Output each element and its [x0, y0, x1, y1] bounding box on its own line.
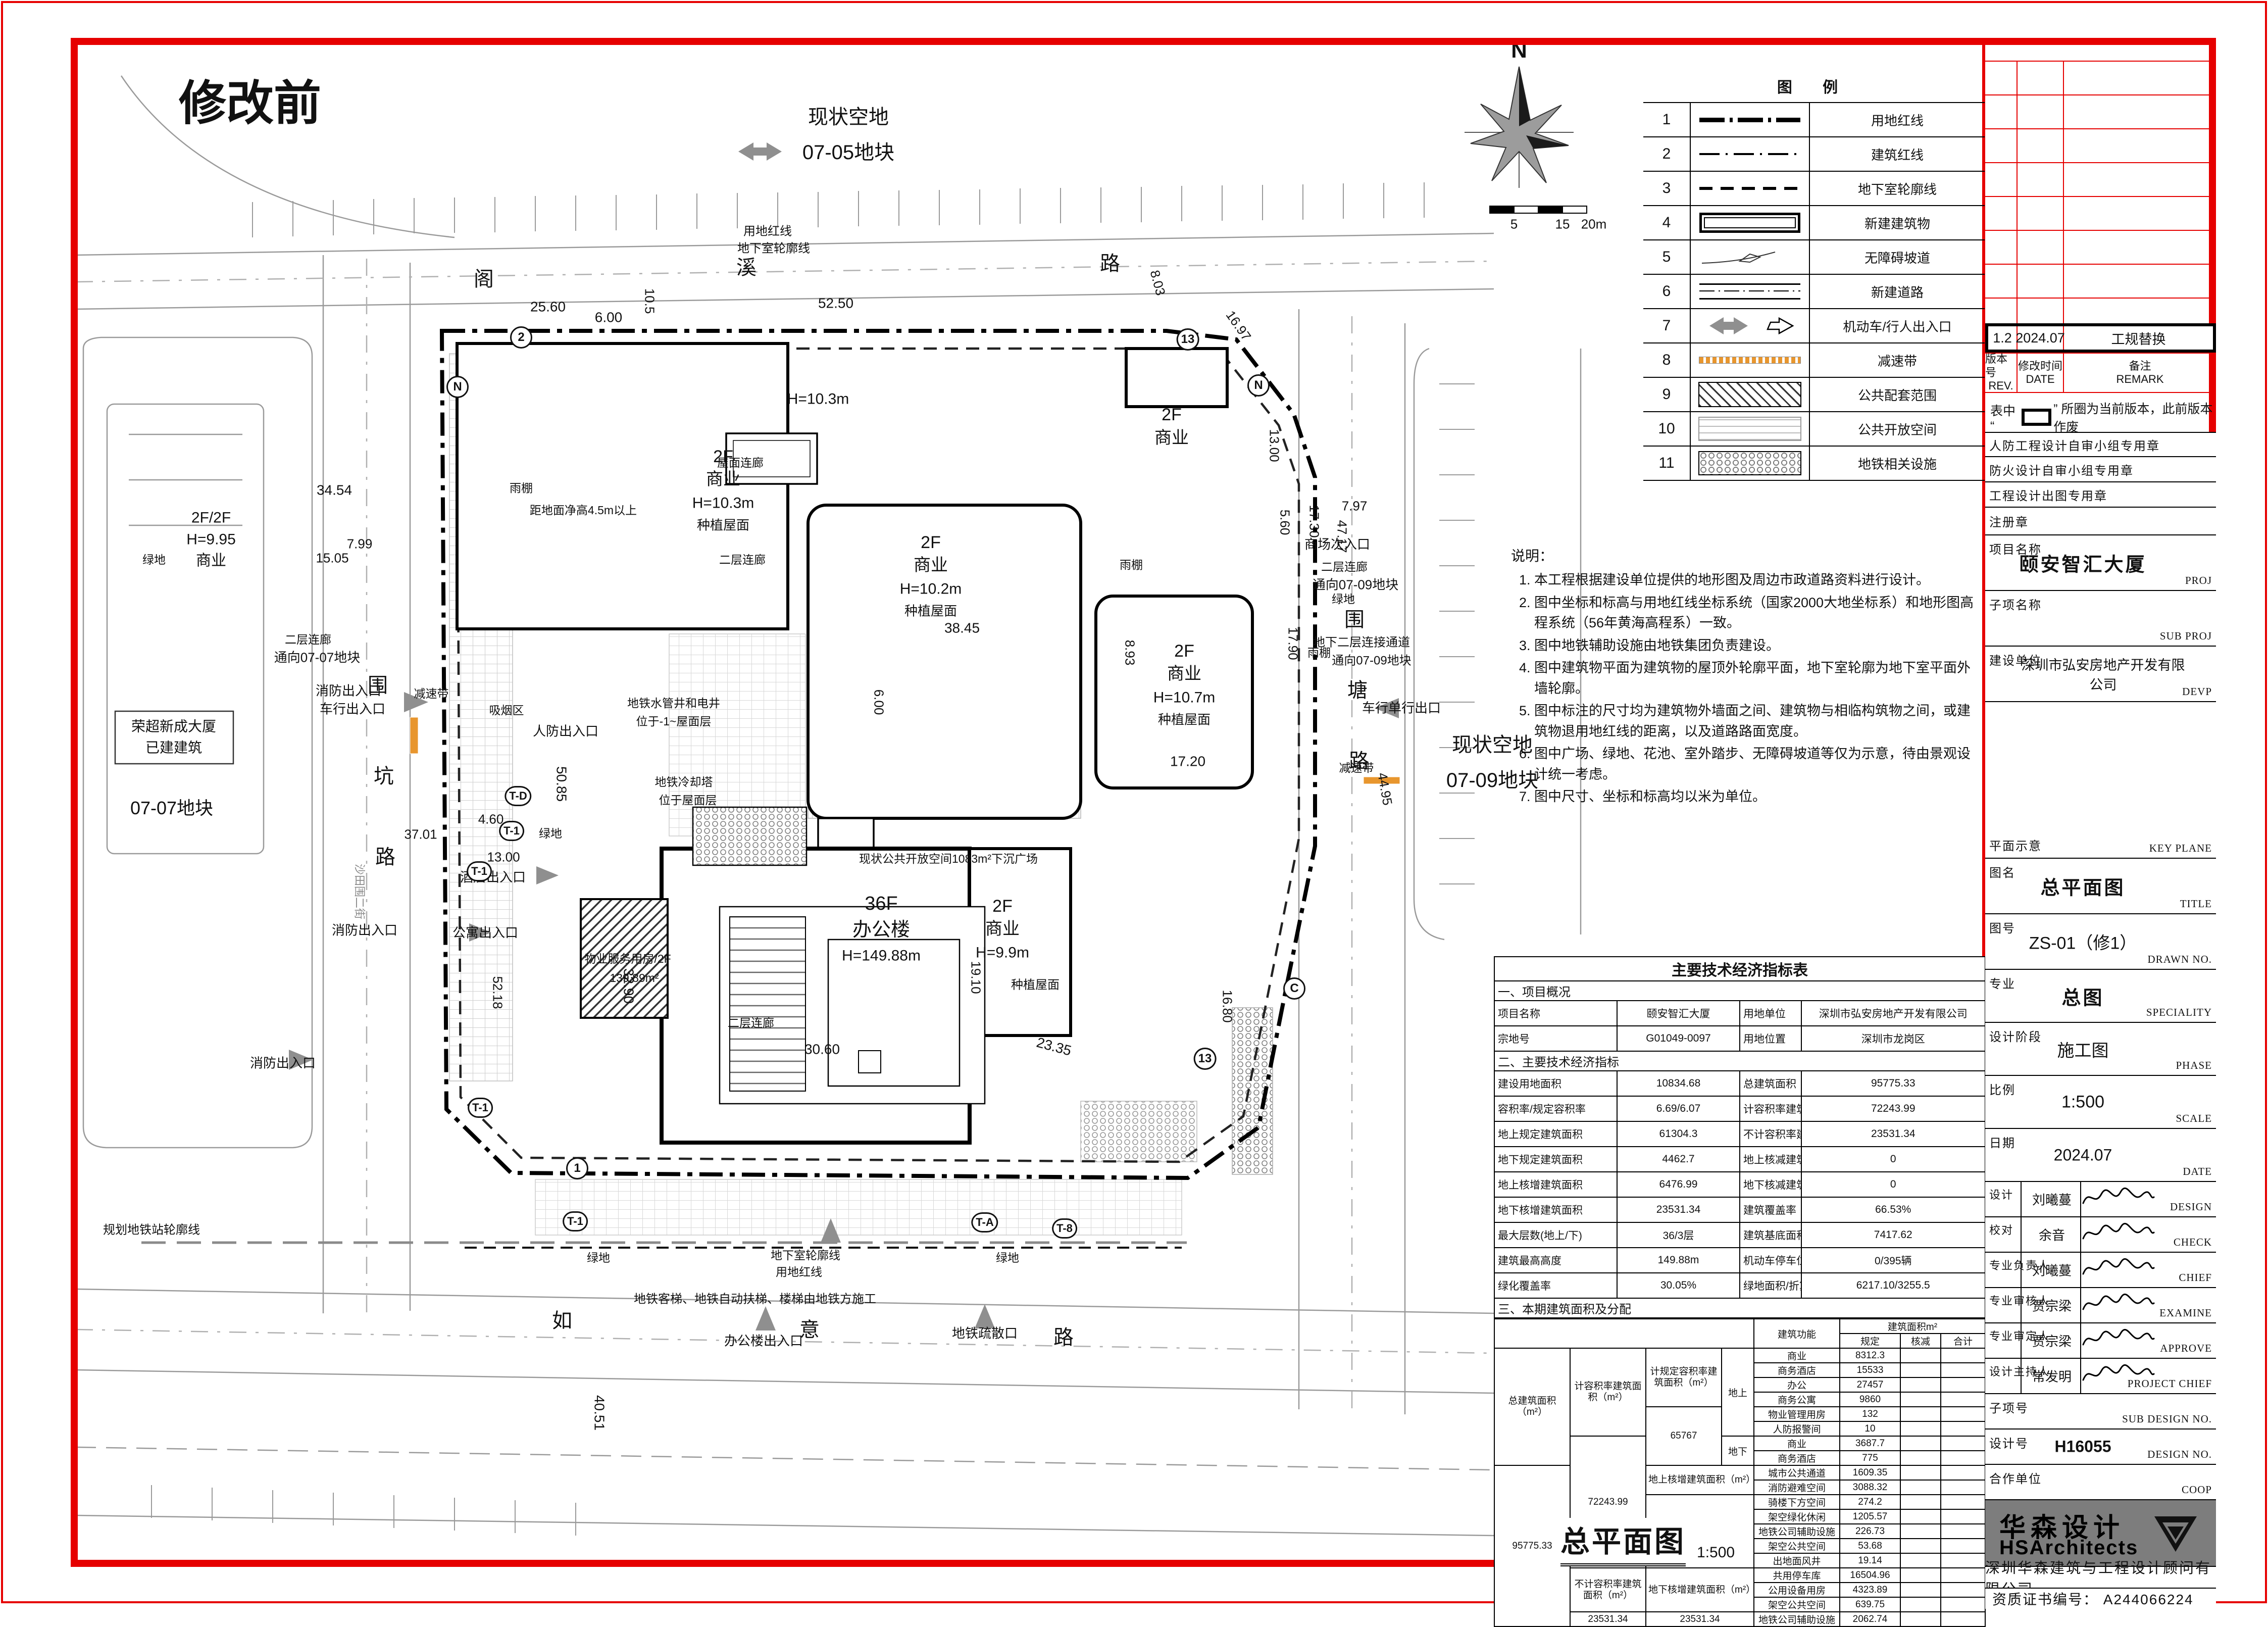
notes-title: 说明：	[1511, 546, 1978, 567]
econ-cell: 0	[1801, 1147, 1986, 1172]
legend-label: 机动车/行人出入口	[1810, 317, 1985, 335]
econ-cell: 6.69/6.07	[1617, 1096, 1740, 1121]
alloc-row: 总建筑面积（m²）计容积率建筑面积（m²）计规定容积率建筑面积（m²）地上商业8…	[1494, 1348, 1985, 1363]
econ-title: 主要技术经济指标表	[1494, 957, 1985, 981]
ramp-symbol-icon	[1691, 240, 1810, 274]
econ-cell: 建筑基底面积	[1740, 1222, 1801, 1248]
field-sub-design-no: 子项号 SUB DESIGN NO.	[1985, 1394, 2216, 1429]
alloc-subheader: 合计	[1941, 1334, 1985, 1348]
alloc-cell	[1900, 1451, 1941, 1465]
newroad-symbol-icon	[1691, 275, 1810, 308]
signature-scribble	[2080, 1185, 2156, 1214]
newbld-symbol-icon	[1691, 206, 1810, 239]
alloc-cell	[1941, 1583, 1985, 1597]
firm-cert: 资质证书编号： A244066224	[1985, 1589, 2216, 1609]
legend-number: 5	[1643, 240, 1691, 274]
econ-cell: 绿化覆盖率	[1494, 1273, 1617, 1298]
indicator-row: 最大层数(地上/下)36/3层建筑基底面积7417.62	[1494, 1222, 1985, 1248]
entry-symbol-icon	[1691, 309, 1810, 342]
alloc-cell	[1900, 1568, 1941, 1583]
note-item: 图中广场、绿地、花池、室外踏步、无障碍坡道等仅为示意，待由景观设计统一考虑。	[1534, 744, 1978, 784]
legend-row: 1用地红线	[1643, 103, 1985, 137]
econ-cell: 23531.34	[1617, 1197, 1740, 1222]
alloc-func-header: 建筑功能	[1754, 1319, 1840, 1348]
legend-label: 减速带	[1810, 351, 1985, 370]
legend-label: 地下室轮廓线	[1810, 179, 1985, 198]
alloc-cell	[1941, 1509, 1985, 1524]
legend-number: 7	[1643, 309, 1691, 342]
alloc-cell: 出地面风井	[1754, 1553, 1840, 1568]
note-item: 图中地铁辅助设施由地铁集团负责建设。	[1534, 635, 1978, 656]
alloc-cell	[1900, 1612, 1941, 1626]
econ-cell: 149.88m	[1617, 1248, 1740, 1273]
legend-number: 2	[1643, 137, 1691, 171]
indicator-row: 地上规定建筑面积61304.3不计容积率建筑面积23531.34	[1494, 1121, 1985, 1147]
econ-cell: 宗地号	[1494, 1026, 1617, 1051]
revision-empty-row	[1985, 196, 2216, 230]
econ-cell: 用地位置	[1740, 1026, 1801, 1051]
indicator-row: 容积率/规定容积率6.69/6.07计容积率建筑面积72243.99	[1494, 1096, 1985, 1121]
econ-cell: 66.53%	[1801, 1197, 1986, 1222]
alloc-cell: 地铁公司辅助设施	[1754, 1612, 1840, 1626]
alloc-cell	[1900, 1377, 1941, 1392]
legend-row: 7机动车/行人出入口	[1643, 309, 1985, 343]
alloc-cell	[1900, 1495, 1941, 1509]
legend-row: 2建筑红线	[1643, 137, 1985, 172]
alloc-cell: 公用设备用房	[1754, 1583, 1840, 1597]
alloc-cell: 城市公共通道	[1754, 1465, 1840, 1480]
alloc-cell: 1609.35	[1840, 1465, 1900, 1480]
note-item: 图中建筑物平面为建筑物的屋顶外轮廓平面，地下室轮廓为地下室平面外墙轮廓。	[1534, 658, 1978, 699]
alloc-cell: 132	[1840, 1407, 1900, 1421]
legend-label: 新建建筑物	[1810, 214, 1985, 232]
alloc-cell	[1941, 1348, 1985, 1363]
alloc-cell	[1900, 1597, 1941, 1612]
alloc-cell: 19.14	[1840, 1553, 1900, 1568]
alloc-cell	[1900, 1553, 1941, 1568]
alloc-cell	[1941, 1553, 1985, 1568]
alloc-cell: 4323.89	[1840, 1583, 1900, 1597]
signature-row: 专业负责人刘曦蔓CHIEF	[1985, 1253, 2216, 1288]
alloc-cell	[1900, 1436, 1941, 1451]
indicator-row: 绿化覆盖率30.05%绿地面积/折算绿地面积6217.10/3255.5	[1494, 1273, 1985, 1298]
econ-cell: 深圳市弘安房地产开发有限公司	[1801, 1001, 1986, 1026]
indicator-row: 地下规定建筑面积4462.7地上核减建筑面积0	[1494, 1147, 1985, 1172]
legend-label: 建筑红线	[1810, 145, 1985, 164]
alloc-span-cell: 地下核增建筑面积（m²）	[1646, 1568, 1754, 1612]
alloc-span-cell: 地下	[1722, 1436, 1754, 1465]
alloc-cell	[1941, 1524, 1985, 1539]
econ-cell: 10834.68	[1617, 1071, 1740, 1096]
revision-empty-row	[1985, 128, 2216, 162]
field-design-no: 设计号 H16055 DESIGN NO.	[1985, 1429, 2216, 1465]
alloc-cell: 架空绿化休闲	[1754, 1509, 1840, 1524]
field-scale: 比例 1:500 SCALE	[1985, 1076, 2216, 1129]
signature-row: 设计主持人常发明PROJECT CHIEF	[1985, 1359, 2216, 1394]
legend: 图 例 1用地红线2建筑红线3地下室轮廓线4新建建筑物5无障碍坡道6新建道路7机…	[1643, 75, 1985, 481]
revision-header-row: 版本号REV. 修改时间DATE 备注REMARK	[1985, 353, 2216, 393]
econ-cell: 地上规定建筑面积	[1494, 1121, 1617, 1147]
alloc-cell	[1900, 1363, 1941, 1377]
field-keyplan: 平面示意 KEY PLANE	[1985, 702, 2216, 859]
legend-row: 3地下室轮廓线	[1643, 172, 1985, 206]
signature-scribble	[2080, 1291, 2156, 1320]
econ-cell: 72243.99	[1801, 1096, 1986, 1121]
stamp-row: 工程设计出图专用章	[1985, 482, 2216, 508]
field-title: 图名 总平面图 TITLE	[1985, 859, 2216, 914]
legend-number: 6	[1643, 275, 1691, 308]
econ-cell: G01049-0097	[1617, 1026, 1740, 1051]
alloc-cell	[1941, 1421, 1985, 1436]
field-coop: 合作单位 COOP	[1985, 1465, 2216, 1500]
bldline-symbol-icon	[1691, 137, 1810, 171]
revision-remark: 工规替换	[2064, 326, 2213, 350]
econ-cell: 地下规定建筑面积	[1494, 1147, 1617, 1172]
notes-list: 本工程根据建设单位提供的地形图及周边市政道路资料进行设计。图中坐标和标高与用地红…	[1511, 570, 1978, 807]
note-item: 图中标注的尺寸均为建筑物外墙面之间、建筑物与相临构筑物之间，或建筑物退用地红线的…	[1534, 701, 1978, 742]
drawing-title: 总平面图 1:500	[1555, 1518, 1740, 1566]
legend-table: 1用地红线2建筑红线3地下室轮廓线4新建建筑物5无障碍坡道6新建道路7机动车/行…	[1643, 102, 1985, 481]
revision-empty-row	[1985, 162, 2216, 196]
field-drawn-no: 图号 ZS-01（修1） DRAWN NO.	[1985, 914, 2216, 970]
alloc-row: 95775.33地上核增建筑面积（m²）城市公共通道1609.35	[1494, 1465, 1985, 1480]
alloc-cell	[1900, 1539, 1941, 1553]
legend-row: 5无障碍坡道	[1643, 240, 1985, 275]
alloc-cell: 15533	[1840, 1363, 1900, 1377]
econ-cell: 地下核增建筑面积	[1494, 1197, 1617, 1222]
alloc-cell: 物业管理用房	[1754, 1407, 1840, 1421]
econ-sec1: 一、项目概况	[1494, 981, 1985, 1001]
legend-number: 11	[1643, 447, 1691, 480]
note-item: 图中坐标和标高与用地红线坐标系统（国家2000大地坐标系）和地形图高程系统（56…	[1534, 593, 1978, 633]
econ-cell: 建筑最高高度	[1494, 1248, 1617, 1273]
econ-cell: 95775.33	[1801, 1071, 1986, 1096]
alloc-cell: 27457	[1840, 1377, 1900, 1392]
econ-cell: 总建筑面积	[1740, 1071, 1801, 1096]
alloc-cell	[1941, 1407, 1985, 1421]
field-date: 日期 2024.07 DATE	[1985, 1129, 2216, 1182]
revision-empty-row	[1985, 61, 2216, 94]
alloc-cell	[1941, 1377, 1985, 1392]
alloc-cell: 商业	[1754, 1436, 1840, 1451]
legend-number: 10	[1643, 412, 1691, 446]
firm-company: 深圳华森建筑与工程设计顾问有限公司	[1985, 1566, 2216, 1589]
drawing-title-text: 总平面图	[1560, 1518, 1686, 1566]
notes: 说明： 本工程根据建设单位提供的地形图及周边市政道路资料进行设计。图中坐标和标高…	[1511, 546, 1978, 809]
econ-cell: 机动车停车位(地上/下)	[1740, 1248, 1801, 1273]
alloc-span-cell: 23531.34	[1570, 1612, 1646, 1626]
alloc-cell: 1205.57	[1840, 1509, 1900, 1524]
alloc-cell	[1941, 1597, 1985, 1612]
alloc-cell	[1941, 1363, 1985, 1377]
alloc-cell	[1941, 1568, 1985, 1583]
alloc-cell	[1900, 1524, 1941, 1539]
alloc-cell: 商务酒店	[1754, 1363, 1840, 1377]
alloc-cell	[1941, 1451, 1985, 1465]
signature-scribble	[2080, 1326, 2156, 1355]
title-block: 1.2 2024.07 工规替换 版本号REV. 修改时间DATE 备注REMA…	[1985, 38, 2216, 1567]
signature-row: 专业审定人贾宗梁APPROVE	[1985, 1323, 2216, 1359]
metro-symbol-icon	[1691, 447, 1810, 480]
stamp-row: 注册章	[1985, 508, 2216, 535]
legend-row: 9公共配套范围	[1643, 378, 1985, 412]
alloc-cell: 3687.7	[1840, 1436, 1900, 1451]
legend-row: 8减速带	[1643, 343, 1985, 378]
signature-row: 设计刘曦蔓DESIGN	[1985, 1182, 2216, 1217]
note-item: 图中尺寸、坐标和标高均以米为单位。	[1534, 786, 1978, 807]
openspace-symbol-icon	[1691, 412, 1810, 446]
econ-cell: 不计容积率建筑面积	[1740, 1121, 1801, 1147]
alloc-span-cell: 地上核增建筑面积（m²）	[1646, 1465, 1754, 1495]
legend-label: 公共开放空间	[1810, 420, 1985, 438]
publichatch-symbol-icon	[1691, 378, 1810, 411]
legend-number: 4	[1643, 206, 1691, 239]
alloc-cell	[1900, 1583, 1941, 1597]
alloc-cell	[1941, 1436, 1985, 1451]
revision-empty-row	[1985, 230, 2216, 264]
indicator-row: 建设用地面积10834.68总建筑面积95775.33	[1494, 1071, 1985, 1096]
econ-cell: 建筑覆盖率	[1740, 1197, 1801, 1222]
legend-label: 公共配套范围	[1810, 385, 1985, 404]
revision-current-row: 1.2 2024.07 工规替换	[1985, 323, 2216, 353]
revision-empty-rows	[1985, 61, 2216, 331]
econ-cell: 6476.99	[1617, 1172, 1740, 1197]
indicator-row: 地下核增建筑面积23531.34建筑覆盖率66.53%	[1494, 1197, 1985, 1222]
alloc-cell	[1900, 1421, 1941, 1436]
legend-row: 6新建道路	[1643, 275, 1985, 309]
alloc-cell: 274.2	[1840, 1495, 1900, 1509]
alloc-cell: 2062.74	[1840, 1612, 1900, 1626]
alloc-cell: 地铁公司辅助设施	[1754, 1524, 1840, 1539]
basement-symbol-icon	[1691, 172, 1810, 205]
alloc-span-cell: 65767	[1646, 1407, 1722, 1465]
alloc-cell: 9860	[1840, 1392, 1900, 1407]
econ-cell: 0	[1801, 1172, 1986, 1197]
alloc-cell	[1941, 1612, 1985, 1626]
alloc-cell	[1941, 1495, 1985, 1509]
econ-cell: 项目名称	[1494, 1001, 1617, 1026]
alloc-span-cell: 不计容积率建筑面积（m²）	[1570, 1568, 1646, 1612]
alloc-cell	[1900, 1348, 1941, 1363]
legend-label: 无障碍坡道	[1810, 248, 1985, 267]
alloc-cell: 共用停车库	[1754, 1568, 1840, 1583]
alloc-cell: 架空公共空间	[1754, 1597, 1840, 1612]
econ-sec2: 二、主要技术经济指标	[1494, 1051, 1985, 1071]
legend-label: 地铁相关设施	[1810, 454, 1985, 473]
alloc-cell	[1941, 1480, 1985, 1495]
econ-cell: 36/3层	[1617, 1222, 1740, 1248]
legend-row: 10公共开放空间	[1643, 412, 1985, 447]
alloc-cell: 8312.3	[1840, 1348, 1900, 1363]
legend-row: 11地铁相关设施	[1643, 447, 1985, 481]
legend-number: 3	[1643, 172, 1691, 205]
econ-cell: 深圳市龙岗区	[1801, 1026, 1986, 1051]
econ-cell: 颐安智汇大厦	[1617, 1001, 1740, 1026]
econ-cell: 计容积率建筑面积	[1740, 1096, 1801, 1121]
alloc-cell: 架空公共空间	[1754, 1539, 1840, 1553]
alloc-area-header: 建筑面积m²	[1840, 1319, 1985, 1334]
alloc-span-cell: 23531.34	[1646, 1612, 1754, 1626]
alloc-cell: 3088.32	[1840, 1480, 1900, 1495]
legend-number: 8	[1643, 343, 1691, 377]
alloc-cell: 骑楼下方空间	[1754, 1495, 1840, 1509]
revision-date: 2024.07	[2018, 326, 2064, 350]
econ-cell: 用地单位	[1740, 1001, 1801, 1026]
alloc-cell: 人防报警间	[1754, 1421, 1840, 1436]
alloc-cell	[1900, 1407, 1941, 1421]
alloc-cell: 办公	[1754, 1377, 1840, 1392]
alloc-cell	[1941, 1465, 1985, 1480]
legend-row: 4新建建筑物	[1643, 206, 1985, 240]
legend-label: 用地红线	[1810, 111, 1985, 129]
econ-sec3: 三、本期建筑面积及分配	[1494, 1298, 1985, 1318]
legend-title: 图 例	[1643, 75, 1985, 97]
alloc-cell: 消防避难空间	[1754, 1480, 1840, 1495]
econ-cell: 地上核减建筑面积	[1740, 1147, 1801, 1172]
econ-cell: 61304.3	[1617, 1121, 1740, 1147]
alloc-cell: 商务公寓	[1754, 1392, 1840, 1407]
legend-number: 1	[1643, 103, 1691, 136]
field-subproject: 子项名称 SUB PROJ	[1985, 591, 2216, 647]
alloc-cell: 53.68	[1840, 1539, 1900, 1553]
legend-number: 9	[1643, 378, 1691, 411]
econ-cell: 容积率/规定容积率	[1494, 1096, 1617, 1121]
alloc-span-cell: 地上	[1722, 1348, 1754, 1436]
econ-cell: 0/395辆	[1801, 1248, 1986, 1273]
alloc-cell	[1941, 1539, 1985, 1553]
econ-cell: 30.05%	[1617, 1273, 1740, 1298]
alloc-cell: 16504.96	[1840, 1568, 1900, 1583]
stamp-row: 防火设计自审小组专用章	[1985, 457, 2216, 482]
alloc-span-cell: 计规定容积率建筑面积（m²）	[1646, 1348, 1722, 1407]
alloc-span-cell: 总建筑面积（m²）	[1494, 1348, 1570, 1465]
signature-row: 校对余音CHECK	[1985, 1217, 2216, 1253]
signature-scribble	[2080, 1220, 2156, 1249]
signature-scribble	[2080, 1256, 2156, 1285]
drawing-scale: 1:500	[1697, 1544, 1735, 1566]
field-phase: 设计阶段 施工图 PHASE	[1985, 1023, 2216, 1076]
alloc-cell: 639.75	[1840, 1597, 1900, 1612]
econ-cell: 地下核减建筑面积	[1740, 1172, 1801, 1197]
field-project: 项目名称 颐安智汇大厦 PROJ	[1985, 535, 2216, 591]
indicator-row: 地上核增建筑面积6476.99地下核减建筑面积0	[1494, 1172, 1985, 1197]
alloc-span-cell: 计容积率建筑面积（m²）	[1570, 1348, 1646, 1436]
alloc-subheader: 核减	[1900, 1334, 1941, 1348]
econ-cell: 6217.10/3255.5	[1801, 1273, 1986, 1298]
redline-symbol-icon	[1691, 103, 1810, 136]
alloc-cell: 10	[1840, 1421, 1900, 1436]
econ-cell: 最大层数(地上/下)	[1494, 1222, 1617, 1248]
field-developer: 建设单位 深圳市弘安房地产开发有限公司 DEVP	[1985, 647, 2216, 702]
revision-empty-row	[1985, 264, 2216, 298]
econ-cell: 建设用地面积	[1494, 1071, 1617, 1096]
econ-cell: 7417.62	[1801, 1222, 1986, 1248]
econ-cell: 绿地面积/折算绿地面积	[1740, 1273, 1801, 1298]
indicator-row: 建筑最高高度149.88m机动车停车位(地上/下)0/395辆	[1494, 1248, 1985, 1273]
legend-label: 新建道路	[1810, 282, 1985, 301]
note-item: 本工程根据建设单位提供的地形图及周边市政道路资料进行设计。	[1534, 570, 1978, 590]
alloc-cell: 商务酒店	[1754, 1451, 1840, 1465]
econ-cell: 23531.34	[1801, 1121, 1986, 1147]
revision-note: 表中 “” 所圈为当前版本，此前版本作废	[1990, 399, 2216, 435]
alloc-cell: 226.73	[1840, 1524, 1900, 1539]
alloc-cell	[1941, 1392, 1985, 1407]
signature-row: 专业审核人贾宗梁EXAMINE	[1985, 1288, 2216, 1323]
alloc-cell	[1900, 1392, 1941, 1407]
alloc-cell: 775	[1840, 1451, 1900, 1465]
revision-rev: 1.2	[1988, 326, 2018, 350]
field-speciality: 专业 总图 SPECIALITY	[1985, 970, 2216, 1023]
alloc-subheader: 规定	[1840, 1334, 1900, 1348]
econ-cell: 4462.7	[1617, 1147, 1740, 1172]
current-version-box-icon	[2022, 409, 2052, 426]
alloc-cell: 商业	[1754, 1348, 1840, 1363]
speedbump-symbol-icon	[1691, 343, 1810, 377]
firm-logo-mark-icon	[2150, 1507, 2201, 1558]
econ-cell: 地上核增建筑面积	[1494, 1172, 1617, 1197]
revision-empty-row	[1985, 94, 2216, 128]
alloc-cell	[1900, 1509, 1941, 1524]
stamp-row: 人防工程设计自审小组专用章	[1985, 432, 2216, 457]
alloc-cell	[1900, 1465, 1941, 1480]
alloc-cell	[1900, 1480, 1941, 1495]
